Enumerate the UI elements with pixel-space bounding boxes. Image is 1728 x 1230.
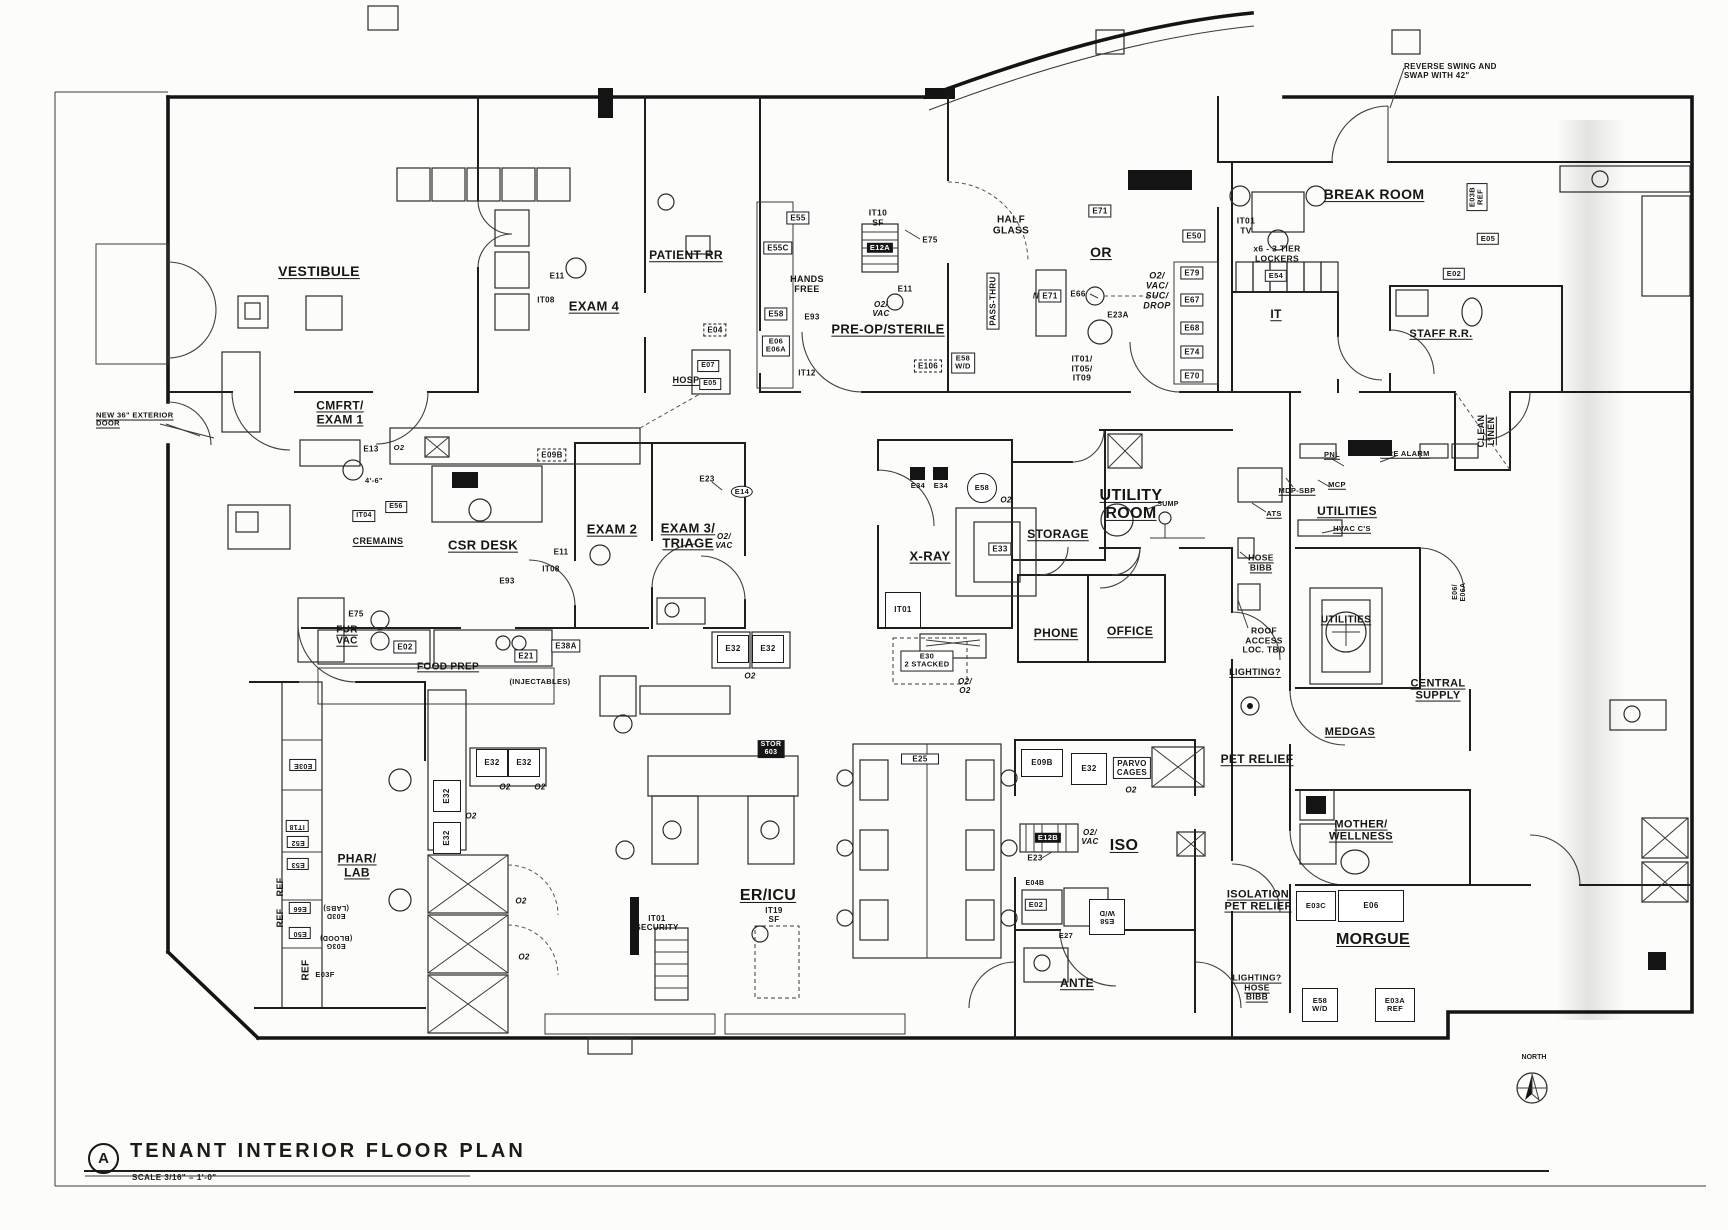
note-o2-phar-2: O2 (534, 782, 545, 791)
note-it01-it05-it09: IT01/ IT05/ IT09 (1071, 355, 1092, 384)
note-lighting: LIGHTING? (1229, 667, 1281, 677)
note-e13: E13 (363, 444, 378, 453)
scan-shadow-band (1556, 120, 1626, 1020)
room-morgue: MORGUE (1336, 931, 1410, 949)
note-roof-access: ROOF ACCESS LOC. TBD (1243, 627, 1286, 656)
note-o2-cages-2: O2 (518, 952, 529, 961)
tag-e54: E54 (1265, 270, 1287, 282)
tag-e58-wd-morgue: E58 W/D (1302, 988, 1338, 1022)
tag-pass-thru: PASS-THRU (986, 272, 999, 329)
note-o2-x-ray: O2 (1000, 495, 1011, 504)
room-ante: ANTE (1060, 977, 1094, 991)
tag-e33: E33 (988, 542, 1011, 555)
tag-it01-x-ray: IT01 (885, 592, 921, 628)
room-utilities: UTILITIES (1317, 505, 1377, 519)
room-exam-2: EXAM 2 (587, 523, 638, 538)
note-o2-o2-e30: O2/ O2 (958, 677, 972, 695)
room-patient-rr: PATIENT RR (649, 249, 723, 263)
note-ats: ATS (1266, 510, 1282, 518)
tag-e03a-ref: E03A REF (1375, 988, 1415, 1022)
tag-e70: E70 (1180, 369, 1203, 382)
room-exam-4: EXAM 4 (569, 300, 620, 315)
floor-plan-sheet: VESTIBULEEXAM 4PATIENT RRPRE-OP/STERILEO… (0, 0, 1728, 1230)
tag-e32-phar-1: E32 (476, 749, 508, 777)
tag-e79: E79 (1180, 266, 1203, 279)
room-food-prep: FOOD PREP (417, 661, 479, 672)
tag-ref-phar: REF (300, 959, 311, 980)
note-e11-exam-4: E11 (550, 271, 565, 280)
tag-e53: E53 (287, 858, 309, 870)
note-e23a: E23A (1107, 310, 1128, 319)
tag-e50-phar: E50 (289, 927, 311, 939)
note-o2-cages-1: O2 (515, 896, 526, 905)
note-o2-corridor-cages: O2 (744, 671, 755, 680)
tag-e21: E21 (514, 649, 537, 662)
note-e66: E66 (1070, 289, 1085, 298)
note-lighting-hose-bibb: LIGHTING? HOSE BIBB (1233, 974, 1282, 1003)
tag-e56: E56 (385, 501, 407, 513)
room-office: OFFICE (1107, 625, 1153, 639)
tag-e07: E07 (697, 360, 719, 372)
note-o2-parvo: O2 (1125, 785, 1136, 794)
tag-e12a: E12A (867, 243, 893, 253)
tag-e71-or-counter: E71 (1088, 204, 1111, 217)
tag-e04: E04 (703, 323, 726, 336)
note-lockers: x6 - 3 TIER LOCKERS (1253, 244, 1300, 263)
note-hvac-cs: HVAC C'S (1333, 525, 1371, 533)
tag-stor-603: STOR 603 (758, 740, 785, 758)
note-mcp: MCP (1328, 481, 1346, 489)
note-half-glass: HALF GLASS (993, 215, 1029, 238)
note-hands-free: HANDS FREE (790, 274, 824, 294)
tag-e25: E25 (901, 753, 939, 764)
note-it08-exam-4: IT08 (537, 295, 554, 304)
note-it01-security: IT01 SECURITY (635, 914, 678, 932)
tag-e02-staff: E02 (1443, 268, 1465, 280)
tag-it04: IT04 (352, 510, 375, 522)
room-or: OR (1090, 245, 1112, 261)
room-storage: STORAGE (1027, 528, 1089, 542)
note-e23-exam-3: E23 (699, 474, 714, 483)
tag-e38a: E38A (551, 639, 580, 652)
tag-e30-2-stacked: E30 2 STACKED (900, 651, 953, 672)
tag-e03e: E03E (290, 759, 317, 771)
tag-e68: E68 (1180, 321, 1203, 334)
tag-e32-corridor-2: E32 (752, 635, 784, 663)
room-cmfrt-exam-1: CMFRT/ EXAM 1 (316, 399, 363, 426)
label-utilities-equipment: UTILITIES (1321, 614, 1371, 625)
note-o2-phar-3: O2 (465, 811, 476, 820)
note-it08-exam-2: IT08 (542, 564, 559, 573)
tag-e71-or-table: E71 (1038, 289, 1061, 302)
note-e75-pre-op: E75 (922, 235, 937, 244)
room-mother-wellness: MOTHER/ WELLNESS (1329, 819, 1393, 844)
tag-e67: E67 (1180, 293, 1203, 306)
tag-e58-x-ray: E58 (967, 473, 997, 503)
room-er-icu: ER/ICU (740, 887, 796, 905)
tag-e09b-iso: E09B (1021, 749, 1063, 777)
note-mdp-sbp: MDP-SBP (1278, 487, 1315, 495)
area-hosp: HOSP (673, 375, 700, 385)
tag-e05-hosp: E05 (699, 378, 721, 390)
note-e93-csr: E93 (499, 576, 514, 585)
note-o2-vac-exam-3: O2/ VAC (715, 532, 732, 550)
tag-e32-phar-2: E32 (508, 749, 540, 777)
tag-e03g-blood: E03G (BLOOD) (320, 933, 352, 949)
tag-e58-pre-op: E58 (764, 307, 787, 320)
tag-e12b: E12B (1035, 833, 1061, 843)
note-new-exterior-door: NEW 36" EXTERIOR DOOR (96, 412, 174, 429)
tag-e58-wd-pre-op: E58 W/D (951, 353, 975, 374)
room-x-ray: X-RAY (909, 550, 950, 565)
tag-e66-phar: E66 (289, 902, 311, 914)
tag-e32-iso: E32 (1071, 753, 1107, 785)
tag-e05-break: E05 (1477, 233, 1499, 245)
room-exam-3-triage: EXAM 3/ TRIAGE (661, 521, 715, 550)
note-sump: SUMP (1157, 501, 1179, 509)
room-central-supply: CENTRAL SUPPLY (1410, 678, 1465, 703)
note-e34-2: E34 (934, 482, 948, 490)
note-e04b: E04B (1026, 880, 1045, 888)
room-iso: ISO (1110, 837, 1139, 855)
note-it19-sf: IT19 SF (765, 906, 782, 924)
note-o2-exam-1: O2 (394, 444, 405, 452)
note-o2-vac-iso: O2/ VAC (1081, 828, 1098, 846)
note-o2-vac-suc-drop: O2/ VAC/ SUC/ DROP (1143, 271, 1170, 312)
tag-e02-food-prep: E02 (393, 640, 416, 653)
tag-e50: E50 (1182, 229, 1205, 242)
tag-e32-phar-3: E32 (433, 780, 461, 812)
note-hose-bibb: HOSE BIBB (1248, 553, 1274, 572)
note-dim-4-6: 4'-6" (365, 477, 383, 485)
note-it10-sf: IT10 SF (869, 208, 887, 227)
note-o2-phar-1: O2 (499, 782, 510, 791)
room-it: IT (1270, 308, 1281, 322)
tag-e32-corridor-1: E32 (717, 635, 749, 663)
tag-parvo-cages: PARVO CAGES (1113, 757, 1151, 779)
note-e34-1: E34 (911, 482, 925, 490)
tag-e55: E55 (786, 211, 809, 224)
note-o2-vac-pre-op: O2/ VAC (872, 300, 889, 318)
note-e93-pre-op: E93 (804, 312, 819, 321)
tag-e06-morgue: E06 (1338, 890, 1404, 922)
tag-it18: IT18 (285, 820, 308, 832)
note-e11-exam-2: E11 (554, 547, 569, 556)
tag-e06-e06a: E06 E06A (762, 336, 790, 357)
room-utility-room: UTILITY ROOM (1100, 487, 1163, 523)
note-fire-alarm: FIRE ALARM (1380, 450, 1429, 458)
tag-e58-wd-iso: E58 W/D (1089, 899, 1125, 935)
room-vestibule: VESTIBULE (278, 264, 360, 280)
tag-ref-lower: REF (275, 908, 285, 927)
tag-e02-iso: E02 (1025, 899, 1047, 911)
note-e23-iso: E23 (1027, 853, 1042, 862)
note-e27: E27 (1059, 932, 1073, 940)
room-csr-desk: CSR DESK (448, 539, 518, 554)
tag-ref-upper: REF (275, 877, 285, 896)
room-staff-rr: STAFF R.R. (1409, 328, 1472, 340)
room-clean-linen: CLEAN LINEN (1476, 415, 1496, 448)
room-break-room: BREAK ROOM (1324, 187, 1425, 203)
room-phone: PHONE (1034, 627, 1078, 641)
tag-e06-e06a-linen: E06/ E06A (1452, 583, 1468, 602)
room-fur-vac: FUR VAC (336, 625, 358, 648)
note-e11-pre-op: E11 (898, 284, 913, 293)
note-e75-fur-vac: E75 (348, 609, 363, 618)
tag-e09b-csr: E09B (537, 448, 566, 461)
room-medgas: MEDGAS (1325, 726, 1375, 738)
room-isolation-pet-relief: ISOLATION PET RELIEF (1224, 889, 1291, 914)
note-injectables: (INJECTABLES) (509, 678, 570, 686)
tag-e32-phar-4: E32 (433, 822, 461, 854)
tag-e55c: E55C (763, 241, 792, 254)
note-it12: IT12 (798, 368, 815, 377)
room-pre-op-sterile: PRE-OP/STERILE (831, 323, 944, 338)
note-reverse-swing: REVERSE SWING AND SWAP WITH 42" (1404, 62, 1497, 80)
tag-e03c: E03C (1296, 891, 1336, 921)
tag-e52: E52 (287, 836, 309, 848)
tag-e106: E106 (914, 359, 942, 372)
room-phar-lab: PHAR/ LAB (337, 852, 376, 879)
note-pnl: PNL (1324, 451, 1340, 459)
note-e03f: E03F (315, 971, 334, 979)
tag-e03d-labs: E03D (LABS) (323, 903, 349, 919)
tag-e74: E74 (1180, 345, 1203, 358)
note-it01-tv: IT01 TV (1237, 216, 1255, 235)
area-cremains: CREMAINS (353, 536, 404, 546)
tag-e03b-ref: E03B REF (1467, 183, 1488, 211)
room-pet-relief: PET RELIEF (1221, 753, 1294, 767)
